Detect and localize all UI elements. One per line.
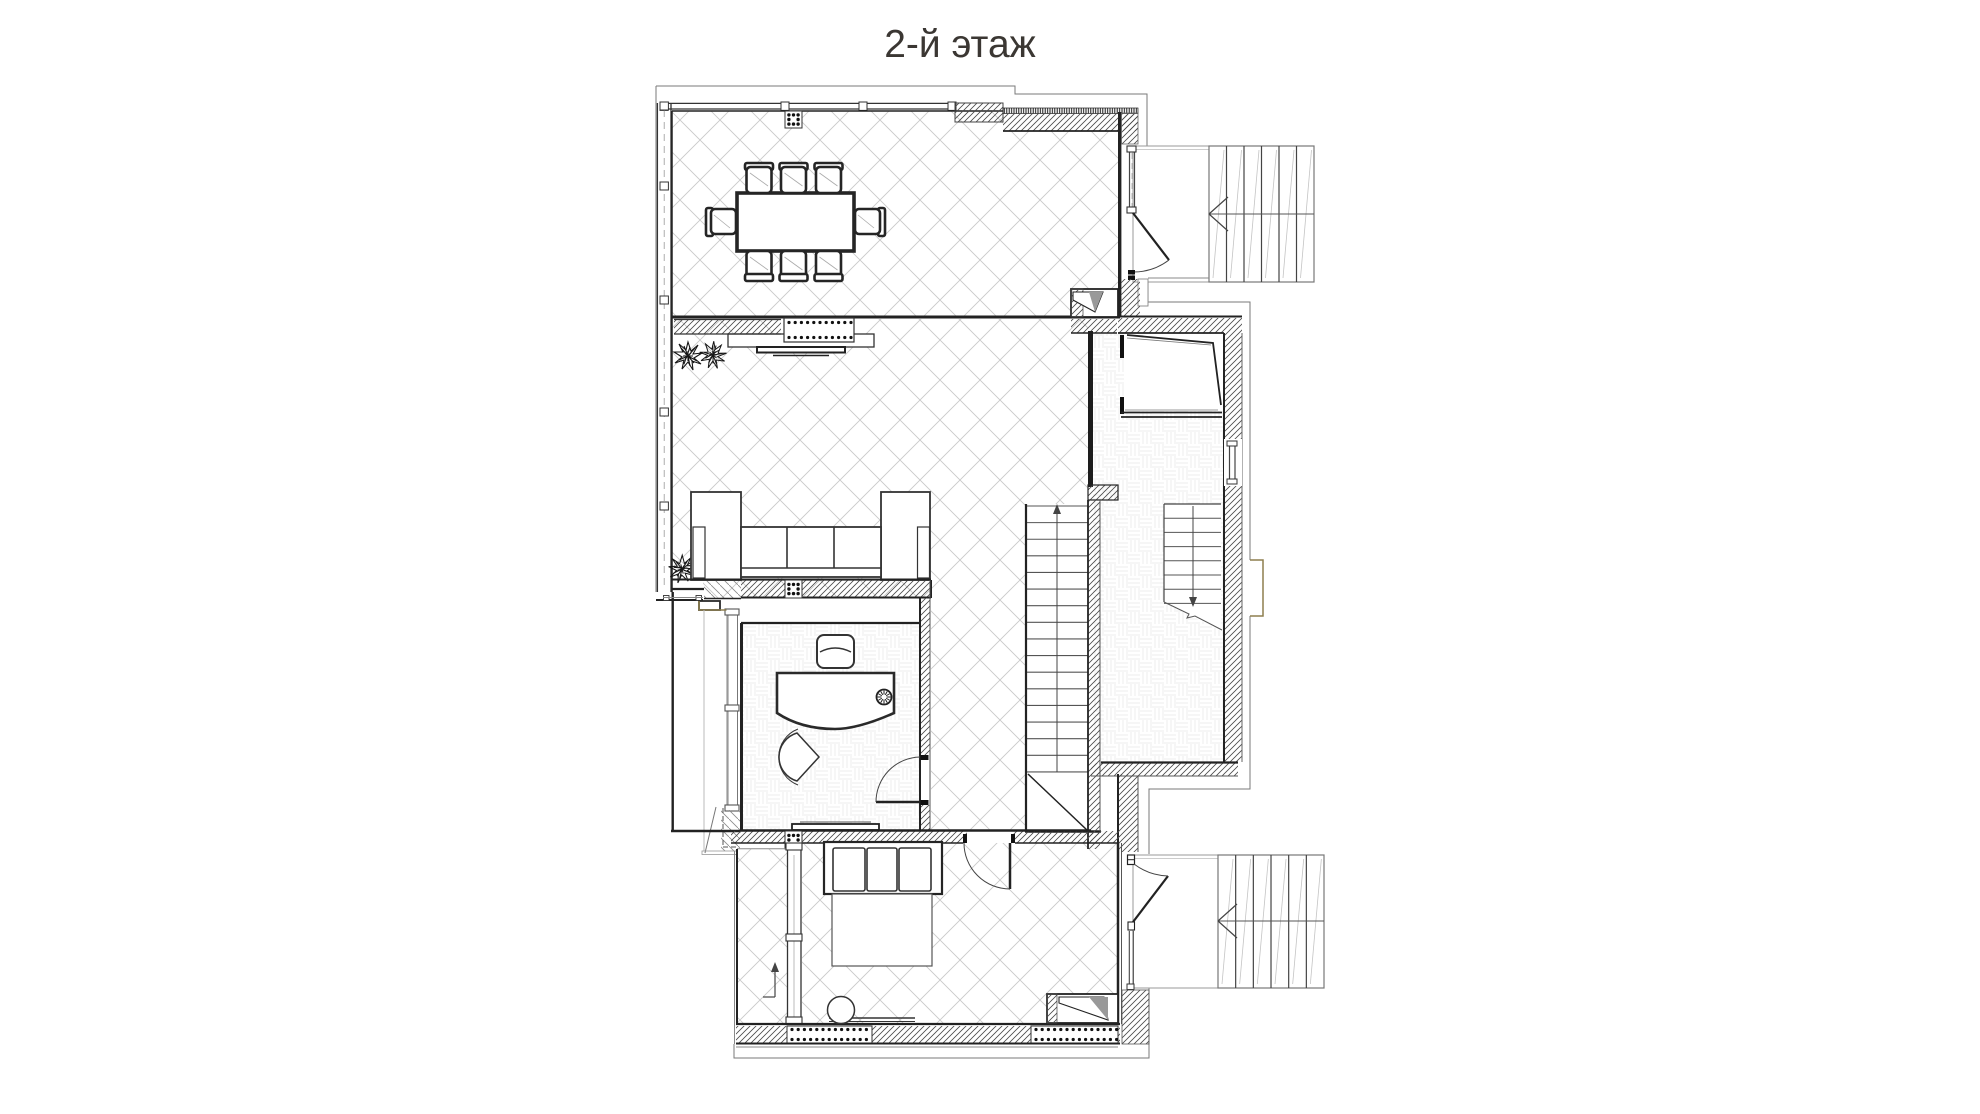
svg-text:2-й этаж: 2-й этаж	[884, 23, 1036, 66]
